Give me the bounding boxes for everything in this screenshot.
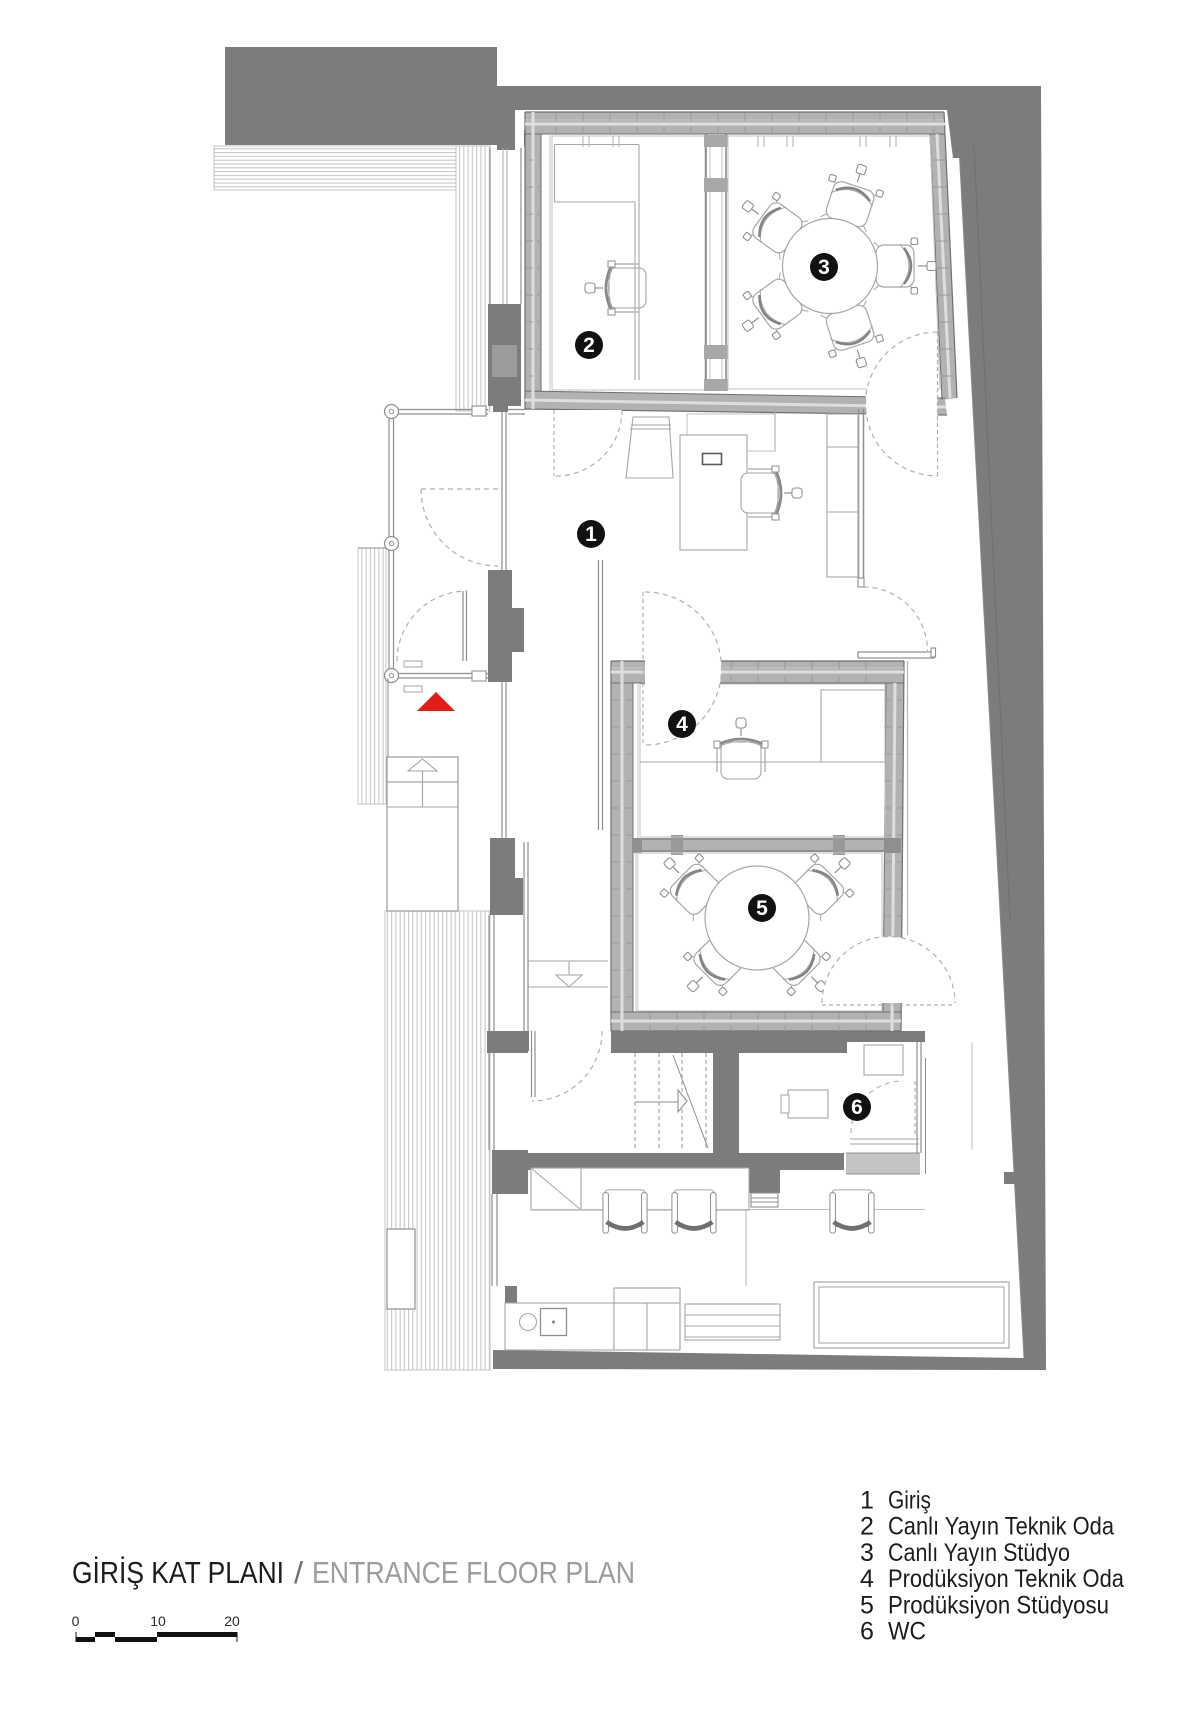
svg-text:10: 10 [150, 1613, 166, 1629]
svg-text:4: 4 [676, 713, 688, 736]
svg-text:6: 6 [860, 1618, 874, 1646]
svg-text:Canlı Yayın Stüdyo: Canlı Yayın Stüdyo [888, 1539, 1070, 1567]
svg-text:Prodüksiyon Teknik Oda: Prodüksiyon Teknik Oda [888, 1565, 1124, 1593]
svg-text:2: 2 [860, 1513, 874, 1541]
svg-text:3: 3 [860, 1539, 874, 1567]
svg-text:1: 1 [585, 523, 597, 546]
svg-text:0: 0 [72, 1613, 80, 1629]
svg-text:2: 2 [583, 334, 595, 357]
svg-text:5: 5 [860, 1591, 874, 1619]
svg-text:Giriş: Giriş [888, 1487, 931, 1515]
svg-text:1: 1 [860, 1487, 874, 1515]
svg-text:3: 3 [818, 256, 830, 279]
svg-text:4: 4 [860, 1565, 874, 1593]
svg-text:6: 6 [851, 1096, 863, 1119]
svg-text:WC: WC [888, 1618, 926, 1646]
svg-text:Canlı Yayın Teknik Oda: Canlı Yayın Teknik Oda [888, 1513, 1114, 1541]
svg-text:20: 20 [224, 1613, 240, 1629]
svg-text:GİRİŞ KAT PLANI: GİRİŞ KAT PLANI [72, 1555, 284, 1590]
svg-text:5: 5 [756, 897, 768, 920]
svg-text:Prodüksiyon Stüdyosu: Prodüksiyon Stüdyosu [888, 1591, 1109, 1619]
svg-text:ENTRANCE FLOOR PLAN: ENTRANCE FLOOR PLAN [312, 1555, 635, 1590]
svg-text:/: / [294, 1555, 303, 1590]
